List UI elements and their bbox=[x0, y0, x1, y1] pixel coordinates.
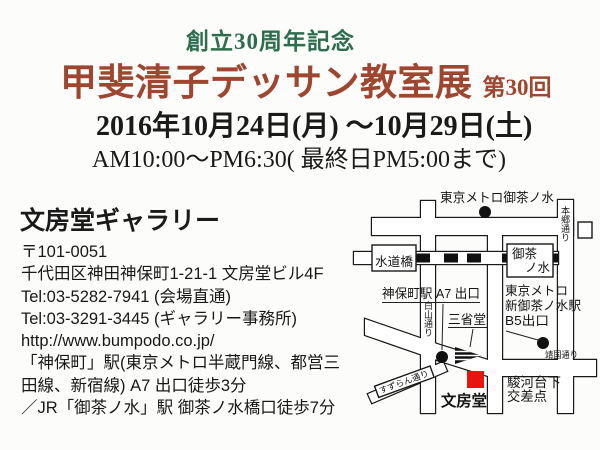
tel-office: Tel:03-3291-3445 (ギャラリー事務所) bbox=[21, 308, 340, 330]
anniversary-heading: 創立30周年記念 bbox=[186, 22, 355, 56]
exhibition-title: 甲斐清子デッサン教室展 bbox=[60, 63, 473, 104]
yasukuni-dori-label: 靖国通り bbox=[545, 349, 578, 360]
hakusan-dori-label: 白山通り bbox=[423, 300, 433, 337]
exhibition-flyer: 創立30周年記念 甲斐清子デッサン教室展第30回 2016年10月24日(月) … bbox=[0, 0, 600, 450]
access-line-2: 田線、新宿線) A7 出口徒歩3分 bbox=[21, 375, 340, 397]
website-url: http://www.bumpodo.co.jp/ bbox=[21, 330, 340, 352]
shin-ochanomizu-label-1: 東京メトロ bbox=[505, 284, 568, 298]
time-line: AM10:00〜PM6:30( 最終日PM5:00まで) bbox=[92, 139, 506, 174]
ochanomizu-label-2: ノ水 bbox=[525, 261, 551, 275]
tel-venue: Tel:03-5282-7941 (会場直通) bbox=[21, 286, 340, 308]
hongo-dori-label: 本郷通り bbox=[560, 205, 570, 242]
access-map: 東京メトロ御茶ノ水 水道橋 御茶 ノ水 本郷通り 神保町駅 A7 出口 白山通り… bbox=[340, 180, 600, 420]
venue-name: 文房堂ギャラリー bbox=[20, 201, 220, 237]
metro-ochanomizu-label: 東京メトロ御茶ノ水 bbox=[440, 190, 554, 205]
access-line-3: ／JR「御茶ノ水」駅 御茶ノ水橋口徒歩7分 bbox=[21, 397, 340, 419]
shin-ochanomizu-label-2: 新御茶ノ水駅 bbox=[505, 298, 581, 313]
small-block-box bbox=[578, 222, 592, 238]
jimbocho-exit-label: 神保町駅 A7 出口 bbox=[382, 286, 480, 301]
postal-code: 〒101-0051 bbox=[21, 241, 340, 263]
venue-details: 〒101-0051 千代田区神田神保町1-21-1 文房堂ビル4F Tel:03… bbox=[21, 241, 340, 419]
bumpodo-label: 文房堂 bbox=[441, 391, 487, 410]
sanseido-label: 三省堂 bbox=[448, 312, 486, 327]
exhibition-edition: 第30回 bbox=[483, 75, 552, 100]
a7-pointer-line bbox=[442, 304, 443, 350]
sanseido-pointer-line bbox=[470, 329, 473, 347]
date-line: 2016年10月24日(月) 〜10月29日(土) bbox=[96, 104, 532, 144]
access-line-1: 「神保町」駅(東京メトロ半蔵門線、都営三 bbox=[21, 352, 340, 374]
metro-ochanomizu-dot bbox=[479, 206, 491, 218]
shin-ochanomizu-label-3: B5出口 bbox=[505, 314, 549, 328]
suidobashi-label: 水道橋 bbox=[375, 255, 413, 269]
title-row: 甲斐清子デッサン教室展第30回 bbox=[60, 52, 552, 106]
surugadai-label-1: 駿河台下 bbox=[507, 375, 561, 390]
b5-pointer-line bbox=[506, 331, 538, 340]
bumpodo-marker bbox=[467, 371, 484, 388]
ochanomizu-label-1: 御茶 bbox=[512, 246, 538, 261]
b5-exit-dot bbox=[537, 337, 549, 349]
street-address: 千代田区神田神保町1-21-1 文房堂ビル4F bbox=[21, 263, 340, 285]
surugadai-label-2: 交差点 bbox=[507, 388, 547, 404]
a7-exit-dot bbox=[436, 351, 448, 363]
